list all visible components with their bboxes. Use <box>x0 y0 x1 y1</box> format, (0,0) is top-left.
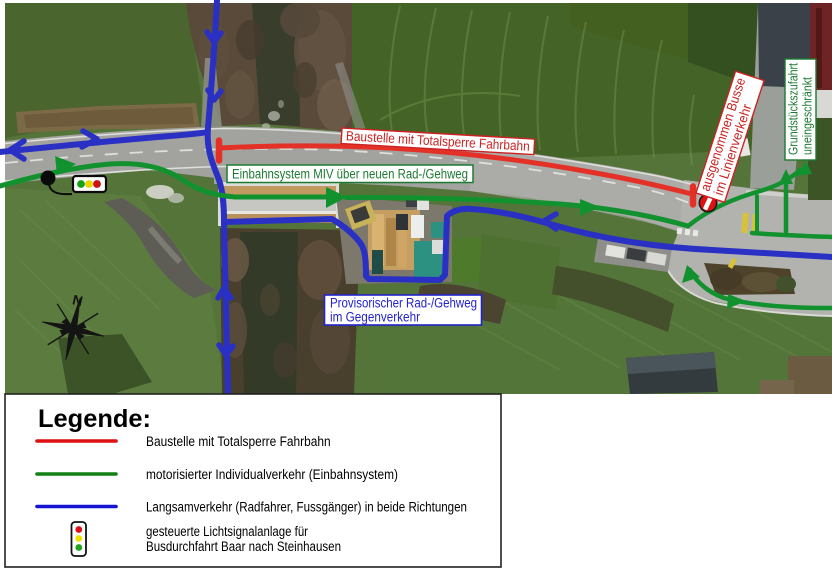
svg-text:Busdurchfahrt Baar nach Steinh: Busdurchfahrt Baar nach Steinhausen <box>146 539 341 554</box>
svg-text:Legende:: Legende: <box>38 405 151 433</box>
svg-text:Provisorischer Rad-/Gehweg: Provisorischer Rad-/Gehweg <box>330 296 477 311</box>
svg-text:Langsamverkehr (Radfahrer, Fus: Langsamverkehr (Radfahrer, Fussgänger) i… <box>146 500 467 515</box>
svg-text:gesteuerte Lichtsignalanlage f: gesteuerte Lichtsignalanlage für <box>146 524 308 539</box>
svg-text:motorisierter Individualverkeh: motorisierter Individualverkehr (Einbahn… <box>146 467 398 482</box>
svg-text:Einbahnsystem MIV über neuen R: Einbahnsystem MIV über neuen Rad-/Gehweg <box>232 167 468 182</box>
svg-text:im Gegenverkehr: im Gegenverkehr <box>330 310 420 325</box>
svg-text:Grundstückszufahrt: Grundstückszufahrt <box>786 63 801 155</box>
svg-text:Baustelle mit Totalsperre Fahr: Baustelle mit Totalsperre Fahrbahn <box>146 434 331 449</box>
svg-text:uneingeschränkt: uneingeschränkt <box>800 77 815 155</box>
